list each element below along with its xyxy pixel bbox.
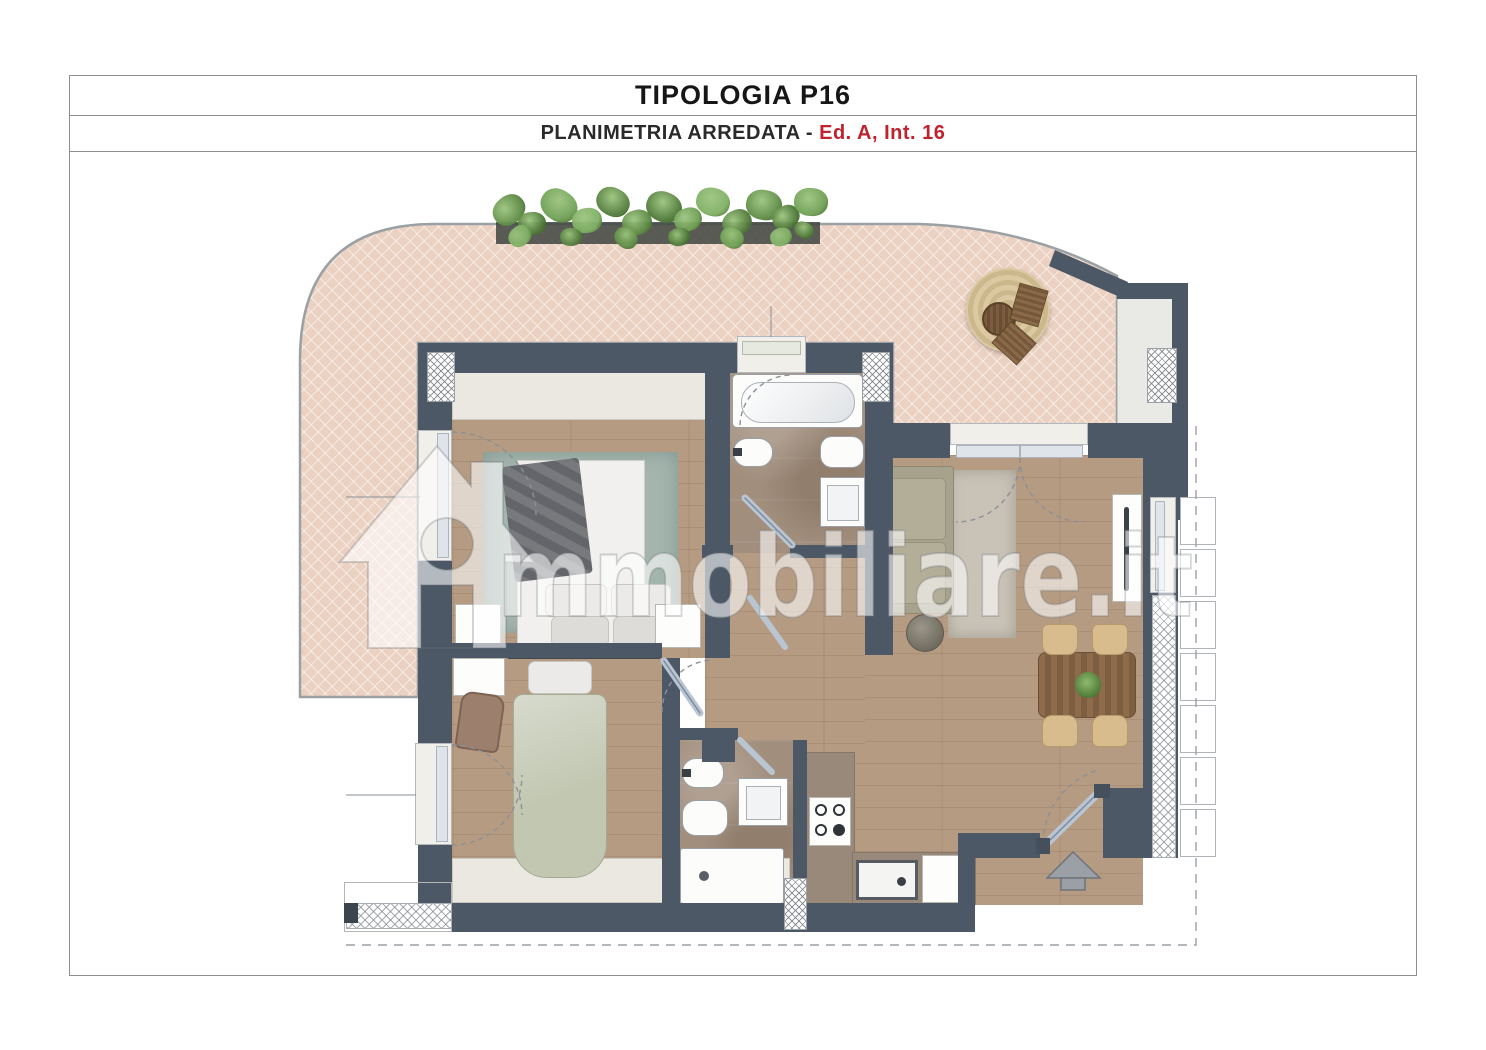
header-subtitle-row: PLANIMETRIA ARREDATA - Ed. A, Int. 16: [69, 116, 1417, 152]
page-frame: [69, 75, 1417, 976]
page-subtitle: PLANIMETRIA ARREDATA - Ed. A, Int. 16: [541, 122, 946, 145]
subtitle-prefix: PLANIMETRIA ARREDATA -: [541, 122, 820, 144]
subtitle-unit: Ed. A, Int. 16: [819, 122, 945, 144]
header-title-row: TIPOLOGIA P16: [69, 75, 1417, 116]
floorplan-page: mmobiliare.it TIPOLOGIA P16 PLANIMETRIA …: [0, 0, 1486, 1050]
page-title: TIPOLOGIA P16: [635, 80, 851, 111]
